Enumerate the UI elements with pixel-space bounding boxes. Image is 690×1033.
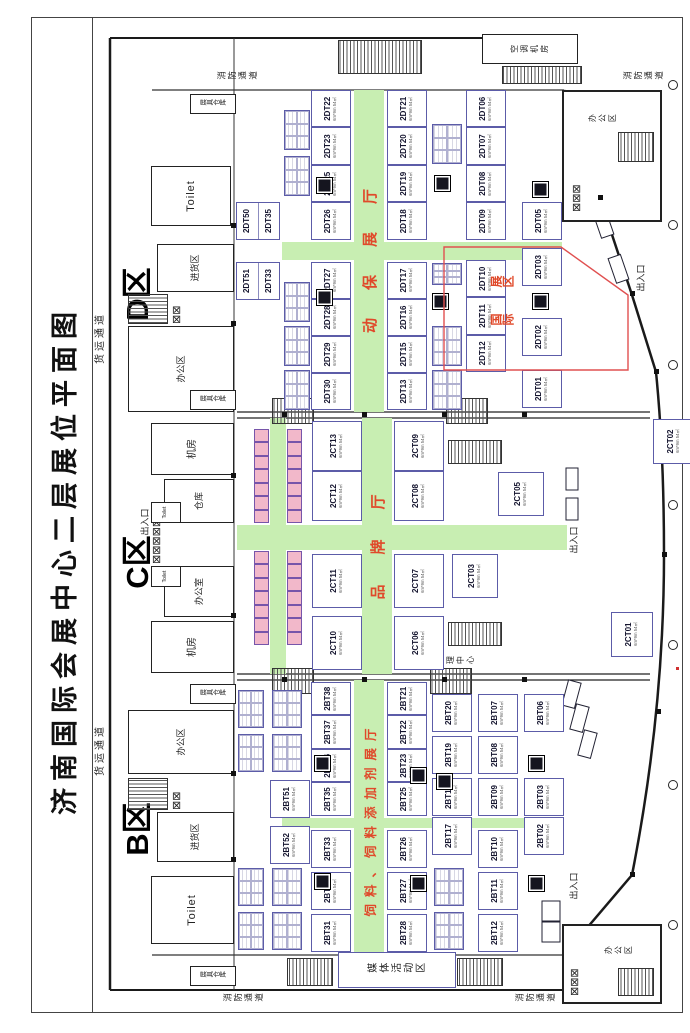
booth[interactable]: 2DT05 6m*9m 54㎡ <box>522 202 562 240</box>
room-toilet-b[interactable]: Toilet <box>151 876 234 944</box>
booth[interactable]: 2DT01 6m*9m 54㎡ <box>522 370 562 408</box>
booth-size-label: 6m*9m 54㎡ <box>339 631 343 655</box>
booth[interactable]: 2CT13 6m*9m 54㎡ <box>312 421 362 471</box>
pillar <box>522 677 527 682</box>
room-machine-c1[interactable]: 机房 <box>151 621 234 673</box>
booth-size-label: 6m*9m 54㎡ <box>333 172 337 196</box>
booth-size-label: 6m*9m 54㎡ <box>409 134 413 158</box>
aisle-b-cross[interactable] <box>282 818 562 828</box>
pillar <box>630 872 635 877</box>
aisle-d-cross[interactable] <box>282 242 562 260</box>
small-booth-cluster[interactable] <box>272 734 302 772</box>
booth-label: 2BT35 <box>324 787 332 811</box>
room-booth-store-4[interactable]: 展具仓库 <box>190 94 236 114</box>
cargo-lane-label-b: 货运通道 <box>93 712 107 788</box>
booth[interactable]: 2CT06 6m*9m 54㎡ <box>394 616 444 670</box>
booth-size-label: 6m*9m 54㎡ <box>292 833 296 857</box>
escalator-right-1[interactable] <box>338 40 422 74</box>
booth[interactable]: 2BT09 6m*9m 54㎡ <box>478 778 518 816</box>
booth-size-label: 6m*9m 54㎡ <box>409 306 413 330</box>
special-booth[interactable] <box>314 873 331 890</box>
booth[interactable]: 2CT056m*9m 54㎡ <box>498 472 544 516</box>
booth-label: 2DT28 <box>324 306 332 330</box>
booth-label: 2DT01 <box>535 377 543 401</box>
pillar <box>442 677 447 682</box>
small-booth-cluster[interactable] <box>432 370 462 410</box>
special-booth[interactable] <box>436 773 453 790</box>
booth[interactable]: 2BT17 6m*9m 54㎡ <box>432 817 472 855</box>
booth-label: 2DT30 <box>324 380 332 404</box>
booth-pair[interactable]: 2DT51 2DT33 <box>236 262 280 300</box>
c-small-booth-strip-2a[interactable] <box>287 551 302 645</box>
small-booth-cluster[interactable] <box>284 370 310 410</box>
small-booth-cluster[interactable] <box>432 124 462 164</box>
small-booth-cluster[interactable] <box>238 868 264 906</box>
booth-size-label: 6m*9m 54㎡ <box>421 434 425 458</box>
booth-size-label: 6m*9m 54㎡ <box>488 342 492 366</box>
c-small-booth-strip-2b[interactable] <box>287 429 302 523</box>
booth-label: 2BT06 <box>537 701 545 725</box>
pillar <box>362 677 367 682</box>
intl-zone-char: 展区 <box>490 273 566 290</box>
b-hall-upper-booths: 2BT52 6m*9m 54㎡ 2BT51 6m*9m 54㎡ <box>270 780 310 864</box>
special-booth[interactable] <box>434 175 451 192</box>
booth-size-label: 6m*9m 54㎡ <box>546 785 550 809</box>
entrance-label-c-right[interactable]: 出入口 <box>569 518 581 562</box>
grid-circle <box>668 920 678 930</box>
elevators-corner-left[interactable]: ⊠⊠⊠ <box>570 952 584 996</box>
booth-size-label: 6m*9m 54㎡ <box>333 209 337 233</box>
booth-size-label: 6m*9m 54㎡ <box>454 824 458 848</box>
booth-label: 2BT08 <box>491 743 499 767</box>
booth-label: 2BT19 <box>445 743 453 767</box>
grid-circle <box>668 500 678 510</box>
pillar <box>231 771 236 776</box>
booth-label: 2DT06 <box>479 97 487 121</box>
booth-label: 2BT26 <box>400 837 408 861</box>
office-area-corner-left: 办公区 <box>590 944 648 958</box>
booth-label: 2CT06 <box>412 631 420 655</box>
booth[interactable]: 2CT11 6m*9m 54㎡ <box>312 554 362 608</box>
small-booth-cluster[interactable] <box>284 110 310 150</box>
small-booth-cluster[interactable] <box>432 263 462 285</box>
booth-size-label: 6m*9m 54㎡ <box>409 921 413 945</box>
booth[interactable]: 2CT036m*9m 54㎡ <box>452 554 498 598</box>
small-booth-cluster[interactable] <box>272 912 302 950</box>
booth-size-label: 6m*9m 54㎡ <box>333 754 337 778</box>
booth-size-label: 6m*9m 54㎡ <box>339 434 343 458</box>
booth-size-label: 6m*9m 54㎡ <box>292 787 296 811</box>
room-booth-store-1[interactable]: 展具仓库 <box>190 966 236 986</box>
d-pairs: 2DT51 2DT33 2DT50 2DT35 <box>236 202 280 300</box>
booth-size-label: 6m*9m 54㎡ <box>500 701 504 725</box>
b-row-c-right: 2BT18 6m*9m 54㎡ 2BT19 6m*9m 54㎡ 2BT20 6m… <box>432 694 472 816</box>
booth-size-label: 6m*9m 54㎡ <box>409 720 413 744</box>
special-booth[interactable] <box>432 293 449 310</box>
booth-size-label: 6m*9m 54㎡ <box>409 380 413 404</box>
booth-label: 2DT16 <box>400 306 408 330</box>
booth-size-label: 6m*9m 54㎡ <box>333 97 337 121</box>
booth-size-label: 6m*9m 54㎡ <box>333 787 337 811</box>
booth-size-label: 6m*9m 54㎡ <box>333 343 337 367</box>
booth-label: 2DT29 <box>324 343 332 367</box>
booth[interactable]: 2BT35 6m*9m 54㎡ <box>311 783 351 817</box>
booth[interactable]: 2DT16 6m*9m 54㎡ <box>387 299 427 336</box>
stairs-left-2 <box>457 958 503 986</box>
booth[interactable]: 2BT37 6m*9m 54㎡ <box>311 716 351 750</box>
booth-label: 2DT10 <box>479 267 487 291</box>
booth[interactable]: 2BT21 6m*9m 54㎡ <box>387 682 427 716</box>
booth[interactable]: 2DT19 6m*9m 54㎡ <box>387 165 427 203</box>
booth-label: 2BT33 <box>324 837 332 861</box>
booth-label: 2BT09 <box>491 785 499 809</box>
booth-size-label: 6m*9m 54㎡ <box>546 824 550 848</box>
booth[interactable]: 2DT30 6m*9m 54㎡ <box>311 373 351 410</box>
booth-size-label: 6m*9m 54㎡ <box>544 377 548 401</box>
booth[interactable]: 2BT02 6m*9m 54㎡ <box>524 817 564 855</box>
d-row-c-right: 2DT09 6m*9m 54㎡ 2DT08 6m*9m 54㎡ 2DT07 6m… <box>466 90 506 240</box>
booth[interactable]: 2BT11 6m*9m 54㎡ <box>478 872 518 910</box>
small-booth-cluster[interactable] <box>272 868 302 906</box>
booth[interactable]: 2DT08 6m*9m 54㎡ <box>466 165 506 203</box>
small-booth-cluster[interactable] <box>272 690 302 728</box>
booth[interactable]: 2CT08 6m*9m 54㎡ <box>394 471 444 521</box>
room-loading-d[interactable]: 进货区 <box>157 244 234 292</box>
b-row-e-left: 2BT02 6m*9m 54㎡ <box>524 817 564 855</box>
booth-label: 2DT21 <box>400 97 408 121</box>
grid-circle <box>668 80 678 90</box>
booth-size-label: 6m*9m 54㎡ <box>409 209 413 233</box>
booth-label: 2DT51 <box>237 263 259 299</box>
booth[interactable]: 2BT03 6m*9m 54㎡ <box>524 778 564 816</box>
hall-title-c: 品牌厅 <box>362 447 392 617</box>
d-row-a-left: 2DT30 6m*9m 54㎡ 2DT29 6m*9m 54㎡ 2DT28 6m… <box>311 262 351 410</box>
booth-label: 2DT07 <box>479 134 487 158</box>
special-booth[interactable] <box>316 289 333 306</box>
booth-label: 2BT27 <box>400 879 408 903</box>
booth-size-label: 6m*9m 54㎡ <box>409 787 413 811</box>
booth-size-label: 6m*9m 54㎡ <box>409 343 413 367</box>
b-row-d-right: 2BT09 6m*9m 54㎡ 2BT08 6m*9m 54㎡ 2BT07 6m… <box>478 694 518 816</box>
aisle-c-center[interactable] <box>237 525 567 550</box>
booth-label: 2BT23 <box>400 754 408 778</box>
escalator-c-1[interactable] <box>448 622 502 646</box>
room-toilet-d[interactable]: Toilet <box>151 166 231 226</box>
booth[interactable]: 2BT33 6m*9m 54㎡ <box>311 830 351 868</box>
revolving-doors-c-entrance[interactable]: ⊠⊠⊠⊠⊠⊠ <box>152 524 182 564</box>
pillar <box>231 613 236 618</box>
booth-size-label: 6m*9m 54㎡ <box>409 172 413 196</box>
booth-size-label: 6m*9m 54㎡ <box>488 209 492 233</box>
booth[interactable]: 2DT23 6m*9m 54㎡ <box>311 128 351 166</box>
elevators-corner-right[interactable]: ⊠⊠⊠ <box>572 168 586 212</box>
special-booth[interactable] <box>532 181 549 198</box>
booth-size-label: 6m*9m 54㎡ <box>421 484 425 508</box>
booth[interactable]: 2BT19 6m*9m 54㎡ <box>432 736 472 774</box>
booth[interactable]: 2BT28 6m*9m 54㎡ <box>387 914 427 952</box>
special-booth[interactable] <box>528 875 545 892</box>
booth[interactable]: 2BT06 6m*9m 54㎡ <box>524 694 564 732</box>
booth[interactable]: 2BT51 6m*9m 54㎡ <box>270 780 310 818</box>
stairs-bc-wall-2 <box>430 668 472 694</box>
booth-label: 2DT09 <box>479 209 487 233</box>
booth-size-label: 6m*9m 54㎡ <box>333 921 337 945</box>
c-row2-left: 2CT06 6m*9m 54㎡ 2CT07 6m*9m 54㎡ <box>394 554 444 670</box>
booth-label: 2DT15 <box>400 343 408 367</box>
booth[interactable]: 2DT20 6m*9m 54㎡ <box>387 128 427 166</box>
booth-size-label: 6m*9m 54㎡ <box>454 785 458 809</box>
small-booth-cluster[interactable] <box>238 734 264 772</box>
special-booth[interactable] <box>410 767 427 784</box>
room-toilet-c1[interactable]: Toilet <box>151 566 181 587</box>
booth-size-label: 6m*9m 54㎡ <box>409 97 413 121</box>
booth[interactable]: 2DT12 6m*9m 54㎡ <box>466 335 506 372</box>
booth-label: 2DT35 <box>259 203 280 239</box>
hall-title-d: 动保展厅 <box>354 122 384 372</box>
booth-size-label: 6m*9m 54㎡ <box>488 97 492 121</box>
stairs-corner-left <box>618 968 654 996</box>
booth-label: 2CT13 <box>330 434 338 458</box>
booth-label: 2DT18 <box>400 209 408 233</box>
room-toilet-c2[interactable]: Toilet <box>151 502 181 523</box>
booth-size-label: 6m*9m 54㎡ <box>333 269 337 293</box>
booth-size-label: 6m*9m 54㎡ <box>500 879 504 903</box>
booth[interactable]: 2BT22 6m*9m 54㎡ <box>387 716 427 750</box>
c-row2-right: 2CT08 6m*9m 54㎡ 2CT09 6m*9m 54㎡ <box>394 421 444 521</box>
intl-zone-char: 国际 <box>490 311 566 328</box>
booth-label: 2DT19 <box>400 172 408 196</box>
booth-size-label: 6m*9m 54㎡ <box>421 569 425 593</box>
booth-size-label: 6m*9m 54㎡ <box>339 484 343 508</box>
stairs-corner-right <box>618 132 654 162</box>
room-loading-b[interactable]: 进货区 <box>157 812 234 862</box>
booth-label: 2BT31 <box>324 921 332 945</box>
booth[interactable]: 2CT10 6m*9m 54㎡ <box>312 616 362 670</box>
booth[interactable]: 2BT38 6m*9m 54㎡ <box>311 682 351 716</box>
c-small-booth-strip-1b[interactable] <box>254 429 269 523</box>
booth-size-label: 6m*9m 54㎡ <box>488 134 492 158</box>
special-booth[interactable] <box>532 293 549 310</box>
booth[interactable]: 2BT10 6m*9m 54㎡ <box>478 830 518 868</box>
stairs-left-1 <box>287 958 333 986</box>
booth-label: 2DT20 <box>400 134 408 158</box>
grid-circle <box>668 220 678 230</box>
booth-label: 2BT28 <box>400 921 408 945</box>
booth-label: 2BT20 <box>445 701 453 725</box>
b-row-a-right: 2BT35 6m*9m 54㎡ 2BT36 6m*9m 54㎡ 2BT37 6m… <box>311 682 351 816</box>
fire-lane-label-3: 消防通道 <box>202 68 274 84</box>
booth-size-label: 6m*9m 54㎡ <box>333 720 337 744</box>
pillar <box>662 552 667 557</box>
booth-label: 2DT22 <box>324 97 332 121</box>
booth-size-label: 6m*9m 54㎡ <box>333 306 337 330</box>
small-booth-cluster[interactable] <box>284 156 310 196</box>
booth[interactable]: 2BT08 6m*9m 54㎡ <box>478 736 518 774</box>
booth-label: 2DT08 <box>479 172 487 196</box>
booth-size-label: 6m*9m 54㎡ <box>544 325 548 349</box>
special-booth[interactable] <box>528 755 545 772</box>
booth-label: 2DT13 <box>400 380 408 404</box>
booth-label: 2DT02 <box>535 325 543 349</box>
booth[interactable]: 2BT52 6m*9m 54㎡ <box>270 826 310 864</box>
small-booth-cluster[interactable] <box>432 326 462 366</box>
floor-plan-canvas: 济南国际会展中心二层展位平面图 动保展厅 品牌厅 <box>31 17 683 1013</box>
pillar <box>630 291 635 296</box>
pillar <box>282 677 287 682</box>
b-row-c-left: 2BT17 6m*9m 54㎡ <box>432 817 472 855</box>
booth-label: 2BT07 <box>491 701 499 725</box>
booth-label: 2DT12 <box>479 341 487 365</box>
media-activity-zone[interactable]: 媒体活动区 <box>338 952 456 988</box>
pillar <box>654 369 659 374</box>
booth-label: 2BT25 <box>400 787 408 811</box>
booth[interactable]: 2CT026m*9m 54㎡ <box>653 419 690 464</box>
small-booth-cluster[interactable] <box>284 326 310 366</box>
booth-label: 2DT33 <box>259 263 280 299</box>
booth-size-label: 6m*9m 54㎡ <box>333 837 337 861</box>
office-area-corner-right: 办公区 <box>574 112 632 126</box>
entrance-label-b[interactable]: 出入口 <box>569 864 581 908</box>
booth-size-label: 6m*9m 54㎡ <box>333 380 337 404</box>
booth[interactable]: 2DT22 6m*9m 54㎡ <box>311 90 351 128</box>
booth-label: 2BT02 <box>537 824 545 848</box>
booth-label: 2BT22 <box>400 720 408 744</box>
grid-circle <box>668 640 678 650</box>
special-booth[interactable] <box>314 755 331 772</box>
booth-size-label: 6m*9m 54㎡ <box>500 921 504 945</box>
booth-size-label: 6m*9m 54㎡ <box>546 701 550 725</box>
booth-size-label: 6m*9m 54㎡ <box>409 269 413 293</box>
booth[interactable]: 2BT31 6m*9m 54㎡ <box>311 914 351 952</box>
pillar <box>231 857 236 862</box>
small-booth-cluster[interactable] <box>238 912 264 950</box>
d-row-b-left: 2DT13 6m*9m 54㎡ 2DT15 6m*9m 54㎡ 2DT16 6m… <box>387 262 427 410</box>
booth-label: 2BT11 <box>491 879 499 903</box>
booth[interactable]: 2CT016m*9m 54㎡ <box>611 612 653 657</box>
booth-label: 2CT08 <box>412 484 420 508</box>
pillar <box>231 321 236 326</box>
escalator-c-2[interactable] <box>448 440 502 464</box>
booth[interactable]: 2CT09 6m*9m 54㎡ <box>394 421 444 471</box>
red-mark <box>676 667 679 670</box>
booth-label: 2DT50 <box>237 203 259 239</box>
pillar <box>231 473 236 478</box>
booth-size-label: 6m*9m 54㎡ <box>333 687 337 711</box>
b-row-a-left: 2BT31 6m*9m 54㎡ 2BT32 6m*9m 54㎡ 2BT33 6m… <box>311 830 351 952</box>
booth-label: 2DT17 <box>400 269 408 293</box>
booth[interactable]: 2DT29 6m*9m 54㎡ <box>311 336 351 373</box>
booth-label: 2BT37 <box>324 720 332 744</box>
booth-label: 2CT10 <box>330 631 338 655</box>
booth[interactable]: 2CT12 6m*9m 54㎡ <box>312 471 362 521</box>
grid-circle <box>668 780 678 790</box>
booth-size-label: 6m*9m 54㎡ <box>454 701 458 725</box>
floor-plan-page: 济南国际会展中心二层展位平面图 动保展厅 品牌厅 <box>0 0 690 1033</box>
b-row-b-right: 2BT25 6m*9m 54㎡ 2BT23 6m*9m 54㎡ 2BT22 6m… <box>387 682 427 816</box>
small-booth-cluster[interactable] <box>284 282 310 322</box>
booth[interactable]: 2DT18 6m*9m 54㎡ <box>387 203 427 241</box>
entrance-label-d[interactable]: 出入口 <box>636 256 648 300</box>
booth-label: 2BT21 <box>400 687 408 711</box>
booth-label: 2DT26 <box>324 209 332 233</box>
d-row-b-right: 2DT18 6m*9m 54㎡ 2DT19 6m*9m 54㎡ 2DT20 6m… <box>387 90 427 240</box>
booth[interactable]: 2DT06 6m*9m 54㎡ <box>466 90 506 128</box>
booth-size-label: 6m*9m 54㎡ <box>500 837 504 861</box>
small-booth-cluster[interactable] <box>434 912 464 950</box>
stairs-d-wing <box>128 294 168 324</box>
special-booth[interactable] <box>316 177 333 194</box>
booth[interactable]: 2DT26 6m*9m 54㎡ <box>311 203 351 241</box>
pillar <box>522 412 527 417</box>
elevators-d-wing[interactable]: ⊠⊠ <box>172 294 198 324</box>
c-small-booth-strip-1a[interactable] <box>254 551 269 645</box>
booth-size-label: 6m*9m 54㎡ <box>421 631 425 655</box>
booth[interactable]: 2DT17 6m*9m 54㎡ <box>387 262 427 299</box>
booth-label: 2CT11 <box>330 569 338 593</box>
room-machine-c2[interactable]: 机房 <box>151 423 234 475</box>
booth-label: 2BT51 <box>283 787 291 811</box>
booth-size-label: 6m*9m 54㎡ <box>544 209 548 233</box>
booth-size-label: 6m*9m 54㎡ <box>488 172 492 196</box>
room-office-area-b[interactable]: 办公区 <box>128 710 234 774</box>
booth[interactable]: 2DT13 6m*9m 54㎡ <box>387 373 427 410</box>
cargo-lane-label-d: 货运通道 <box>93 300 107 376</box>
room-hvac[interactable]: 空调机房 <box>482 34 578 64</box>
booth-label: 2CT12 <box>330 484 338 508</box>
booth-label: 2CT07 <box>412 569 420 593</box>
booth-label: 2DT23 <box>324 134 332 158</box>
booth[interactable]: 2BT26 6m*9m 54㎡ <box>387 830 427 868</box>
booth-label: 2DT11 <box>479 304 487 328</box>
booth-size-label: 6m*9m 54㎡ <box>500 743 504 767</box>
room-booth-store-2[interactable]: 展具仓库 <box>190 684 236 704</box>
stairs-b-wing <box>128 778 168 810</box>
booth-size-label: 6m*9m 54㎡ <box>454 743 458 767</box>
booth-label: 2BT17 <box>445 824 453 848</box>
pillar <box>442 412 447 417</box>
booth-size-label: 6m*9m 54㎡ <box>333 134 337 158</box>
booth[interactable]: 2BT12 6m*9m 54㎡ <box>478 914 518 952</box>
room-booth-store-3[interactable]: 展具仓库 <box>190 390 236 410</box>
booth[interactable]: 2DT21 6m*9m 54㎡ <box>387 90 427 128</box>
b-row-d-left: 2BT12 6m*9m 54㎡ 2BT11 6m*9m 54㎡ 2BT10 6m… <box>478 830 518 952</box>
booth[interactable]: 2BT20 6m*9m 54㎡ <box>432 694 472 732</box>
pillar <box>598 195 603 200</box>
booth[interactable]: 2BT07 6m*9m 54㎡ <box>478 694 518 732</box>
booth-pair[interactable]: 2DT50 2DT35 <box>236 202 280 240</box>
booth-label: 2CT09 <box>412 434 420 458</box>
pillar <box>231 223 236 228</box>
booth[interactable]: 2CT07 6m*9m 54㎡ <box>394 554 444 608</box>
booth-size-label: 6m*9m 54㎡ <box>339 569 343 593</box>
booth-label: 2BT52 <box>283 833 291 857</box>
booth[interactable]: 2BT25 6m*9m 54㎡ <box>387 783 427 817</box>
escalator-right-2[interactable] <box>502 66 582 84</box>
booth[interactable]: 2DT07 6m*9m 54㎡ <box>466 128 506 166</box>
special-booth[interactable] <box>410 875 427 892</box>
booth-size-label: 6m*9m 54㎡ <box>333 879 337 903</box>
c-row1-left: 2CT10 6m*9m 54㎡ 2CT11 6m*9m 54㎡ <box>312 554 362 670</box>
grid-circle <box>668 360 678 370</box>
booth[interactable]: 2DT09 6m*9m 54㎡ <box>466 203 506 241</box>
d-row-a-right: 2DT26 6m*9m 54㎡ 2DT25 6m*9m 54㎡ 2DT23 6m… <box>311 90 351 240</box>
booth[interactable]: 2DT15 6m*9m 54㎡ <box>387 336 427 373</box>
small-booth-cluster[interactable] <box>238 690 264 728</box>
elevators-b-wing[interactable]: ⊠⊠ <box>172 778 198 810</box>
pillar <box>362 412 367 417</box>
booth-label: 2DT05 <box>535 209 543 233</box>
small-booth-cluster[interactable] <box>434 868 464 906</box>
